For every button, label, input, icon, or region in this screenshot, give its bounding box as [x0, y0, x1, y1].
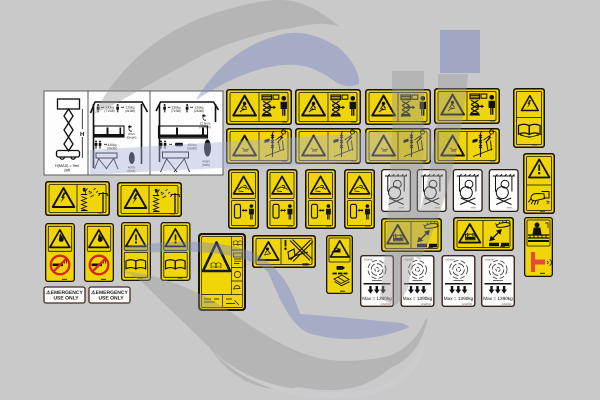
svg-text:(28mph): (28mph): [199, 125, 211, 129]
svg-text:26ft: 26ft: [64, 169, 71, 173]
svg-text:(715lb): (715lb): [171, 109, 181, 113]
svg-text:(0mph): (0mph): [127, 136, 137, 140]
svg-text:H: H: [80, 131, 84, 138]
svg-text:USE ONLY: USE ONLY: [53, 296, 79, 302]
svg-text:(715lb): (715lb): [104, 109, 114, 113]
svg-text:(413lb): (413lb): [125, 109, 135, 113]
svg-text:GS4047: GS4047: [364, 259, 374, 262]
svg-text:H(MAX) = 9m/: H(MAX) = 9m/: [55, 164, 80, 168]
svg-text:(263lb): (263lb): [194, 109, 204, 113]
